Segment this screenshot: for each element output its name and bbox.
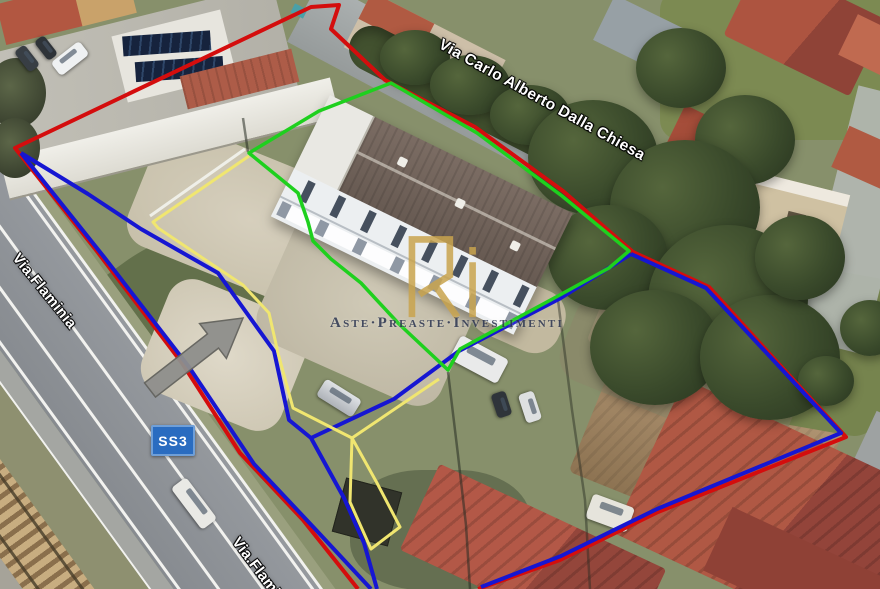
- boundary-yellow-spur: [352, 379, 439, 438]
- watermark-monogram-icon: [404, 230, 490, 320]
- route-badge-ss3: SS3: [151, 425, 195, 456]
- aerial-property-map: Via Carlo Alberto Dalla Chiesa Via.Flami…: [0, 0, 880, 589]
- watermark-brand-text: Aste·Preaste·Investimenti: [257, 315, 637, 332]
- boundary-blue-west: [21, 153, 371, 589]
- boundary-blue-east: [481, 254, 841, 587]
- fence-line: [448, 372, 470, 589]
- fence-line: [243, 118, 248, 152]
- boundary-white-path: [150, 149, 245, 216]
- boundary-yellow-main: [153, 156, 352, 438]
